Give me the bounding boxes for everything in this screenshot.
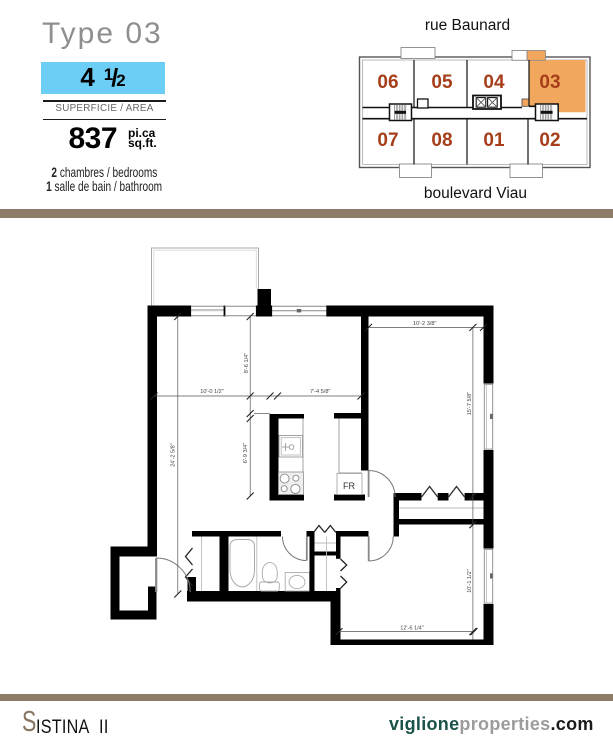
- svg-text:07: 07: [377, 130, 398, 151]
- svg-text:15'-7 5/8": 15'-7 5/8": [467, 392, 473, 416]
- svg-text:24'-2 5/8": 24'-2 5/8": [170, 443, 176, 467]
- svg-text:06: 06: [377, 72, 398, 93]
- svg-text:10'-1 1/2": 10'-1 1/2": [467, 569, 473, 593]
- svg-text:FR: FR: [343, 481, 355, 491]
- svg-text:01: 01: [483, 130, 505, 151]
- svg-text:12'-6 1/4": 12'-6 1/4": [400, 625, 424, 631]
- svg-text:8'-6 1/4": 8'-6 1/4": [244, 353, 250, 373]
- svg-text:6'-9 3/4": 6'-9 3/4": [243, 443, 249, 463]
- svg-text:02: 02: [539, 130, 560, 151]
- svg-text:03: 03: [539, 72, 560, 93]
- svg-text:08: 08: [431, 130, 452, 151]
- svg-text:10'-0 1/2": 10'-0 1/2": [200, 389, 224, 395]
- svg-text:05: 05: [431, 72, 453, 93]
- svg-text:7'-4 5/8": 7'-4 5/8": [310, 389, 330, 395]
- svg-text:04: 04: [483, 72, 505, 93]
- svg-text:10'-2 3/8": 10'-2 3/8": [413, 321, 437, 327]
